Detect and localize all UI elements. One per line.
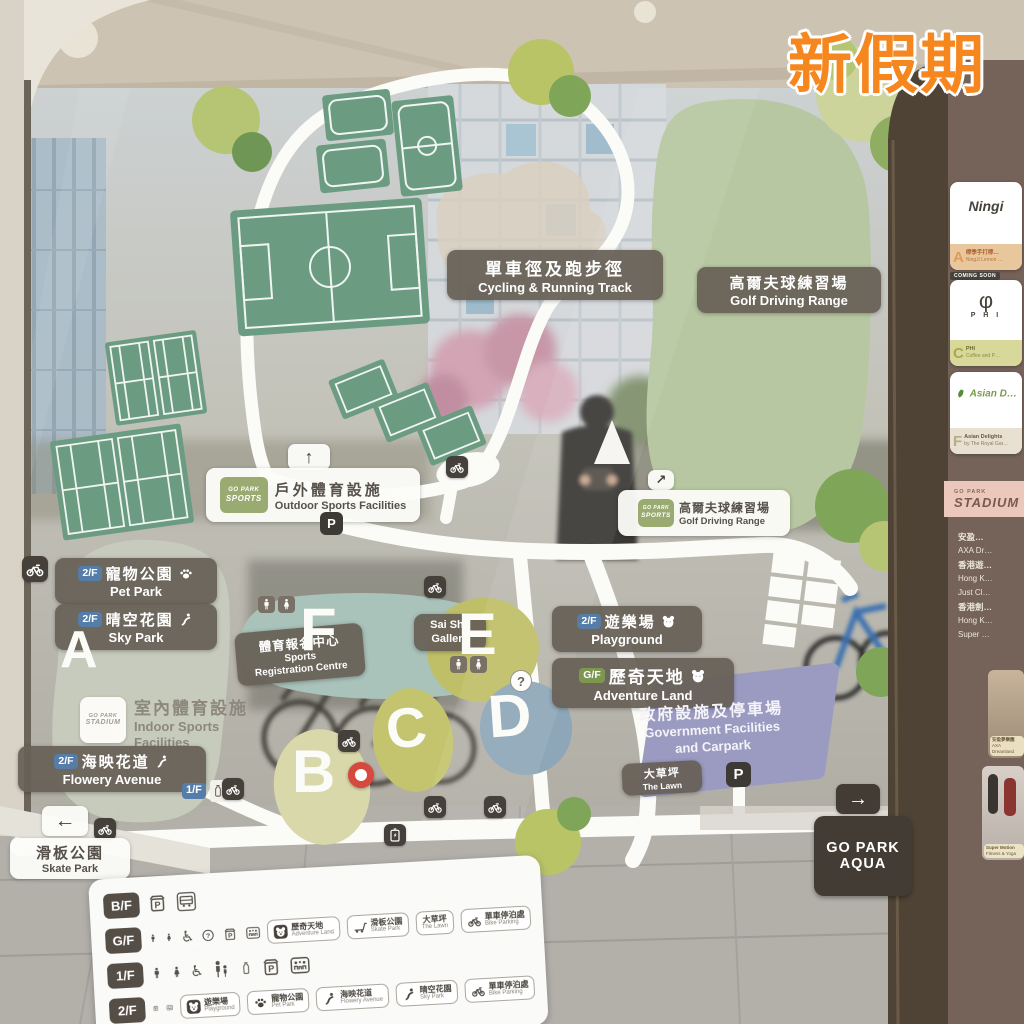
legend-tag-playground: 遊樂場Playground	[180, 992, 242, 1019]
legend-tag-skate-park: 滑板公園Skate Park	[346, 912, 409, 939]
go-park-stadium-badge: GO PARK STADIUM	[80, 697, 126, 743]
paw-icon	[178, 566, 194, 582]
bike-icon	[466, 913, 482, 929]
svg-text:P: P	[154, 900, 161, 910]
logo-text: Asian D…	[970, 389, 1017, 400]
photo-caption: 安盈夢樂園 AXA Dreamland	[990, 736, 1024, 756]
label-the-lawn: 大草坪 The Lawn	[621, 760, 703, 796]
runner-icon	[401, 986, 417, 1002]
up-arrow-icon: ↑	[288, 444, 330, 470]
male-toilet-icon	[150, 962, 164, 985]
floor-badge-2f: 2/F	[109, 997, 146, 1024]
family-room-icon	[289, 954, 312, 977]
label-adventure-zh: 歷奇天地	[609, 663, 685, 688]
label-playground-zh: 遊樂場	[605, 611, 656, 632]
directory-card-asian-delights: Asian D… F Asian Delights by The Royal G…	[950, 372, 1022, 454]
label-pet-park-en: Pet Park	[65, 584, 207, 599]
bike-parking-icon	[222, 778, 244, 800]
card-zh: 檸季手打檸…	[966, 250, 1003, 257]
bear-icon	[689, 667, 707, 685]
bike-parking-icon	[446, 456, 468, 478]
male-toilet-icon	[258, 596, 275, 613]
bike-icon	[470, 982, 486, 998]
label-go-park-aqua: GO PARK AQUA	[814, 816, 912, 896]
tenant-line: Hong K…	[958, 614, 1024, 628]
svg-text:P: P	[155, 1007, 157, 1011]
label-golf-sign-en: Golf Driving Range	[679, 516, 770, 527]
tag-en: The Lawn	[422, 923, 449, 931]
ne-arrow-icon: ↗	[648, 470, 674, 490]
floor-badge-gf: G/F	[579, 668, 605, 683]
tenant-line: Just Cl…	[958, 586, 1024, 600]
card-band: C PHI Coffee and P…	[950, 340, 1022, 366]
floor-badge-1f: 1/F	[107, 962, 144, 989]
sports-badge-line1: GO PARK	[228, 487, 259, 494]
label-golf-zone: 高爾夫球練習場 Golf Driving Range	[697, 267, 881, 313]
svg-text:P: P	[268, 964, 275, 974]
nursing-room-icon	[210, 958, 233, 981]
tenant-list: 安盈… AXA Dr… 香港遊… Hong K… Just Cl… 香港劍… H…	[958, 530, 1024, 641]
zone-letter-a: A	[60, 624, 98, 676]
label-golf-zone-en: Golf Driving Range	[707, 293, 871, 308]
covered-parking-icon: P	[152, 997, 160, 1019]
bear-icon	[273, 923, 289, 939]
wheelchair-icon: ♿	[190, 963, 204, 979]
legend-tag-sky-park: 晴空花園Sky Park	[395, 980, 458, 1007]
floor-1f-amenities: 1/F	[182, 780, 226, 802]
bike-parking-icon	[424, 576, 446, 598]
label-outdoor-en: Outdoor Sports Facilities	[275, 500, 406, 512]
asian-delights-logo: Asian D…	[950, 372, 1022, 400]
toilet-icons	[258, 596, 295, 613]
current-location-pin	[348, 762, 374, 788]
person-silhouette	[988, 774, 998, 814]
female-toilet-icon	[278, 596, 295, 613]
ningji-logo: Ningi	[950, 182, 1022, 214]
paw-icon	[253, 995, 269, 1011]
label-golf-sign: GO PARK SPORTS 高爾夫球練習場 Golf Driving Rang…	[618, 490, 790, 536]
svg-text:P: P	[228, 933, 233, 940]
caption-en2: Fitness & Yoga	[986, 851, 1022, 857]
female-toilet-icon	[170, 961, 184, 984]
shuttle-bus-icon	[175, 890, 198, 913]
magazine-watermark: 新假期	[788, 14, 986, 106]
stadium-badge-line1: GO PARK	[89, 713, 118, 720]
zone-letter-c: C	[383, 698, 429, 758]
female-toilet-icon	[164, 926, 175, 948]
tag-en: Flowery Avenue	[340, 997, 383, 1006]
directory-card-ningji: Ningi A 檸季手打檸… NingJi Lemon …	[950, 182, 1022, 270]
label-indoor-en1: Indoor Sports	[134, 719, 248, 735]
bike-parking-icon	[22, 556, 48, 582]
label-sky-park-zh: 晴空花園	[106, 609, 174, 630]
covered-parking-icon: P	[260, 955, 283, 978]
tenant-line: 香港劍…	[958, 600, 1024, 614]
label-playground-en: Playground	[562, 632, 692, 647]
football-pitch	[230, 197, 430, 336]
label-skate-park: 滑板公園 Skate Park	[10, 838, 130, 879]
basketball-court	[391, 95, 463, 197]
wheelchair-icon: ♿	[181, 929, 195, 945]
coming-soon-tag: COMING SOON	[950, 272, 1000, 280]
label-outdoor-zh: 戶外體育設施	[275, 479, 406, 500]
floor-badge-2f: 2/F	[78, 566, 101, 581]
label-playground: 2/F 遊樂場 Playground	[552, 606, 702, 652]
card-en: NingJi Lemon …	[966, 257, 1003, 263]
phi-logo: φ	[950, 290, 1022, 312]
scooter-icon	[352, 919, 368, 935]
zone-letter-d: D	[486, 685, 533, 748]
card-en: by The Royal Gar…	[964, 441, 1008, 447]
tenant-line: 安盈…	[958, 530, 1024, 544]
label-flowery-zh: 海映花道	[82, 751, 150, 772]
info-icon: ?	[201, 924, 216, 947]
tenant-line: Hong K…	[958, 572, 1024, 586]
tag-en: Bike Parking	[485, 919, 525, 928]
label-cycling-en: Cycling & Running Track	[457, 280, 653, 295]
tennis-courts-1	[105, 330, 208, 426]
card-band: F Asian Delights by The Royal Gar…	[950, 428, 1022, 454]
go-park-sports-badge: GO PARK SPORTS	[220, 477, 268, 513]
unit-letter: C	[953, 346, 964, 361]
covered-parking-icon: P	[221, 923, 238, 946]
tenant-line: Super …	[958, 628, 1024, 642]
futsal-court-1	[322, 89, 394, 142]
card-en: Coffee and P…	[966, 353, 1000, 359]
stadium-badge-line2: STADIUM	[86, 719, 121, 727]
toilet-icons	[450, 656, 487, 673]
info-icon: ?	[510, 670, 532, 692]
caption-en: AXA Dreamland	[992, 743, 1022, 755]
label-flowery-en: Flowery Avenue	[28, 772, 196, 787]
phi-logo-sub: P H I	[950, 312, 1022, 319]
covered-parking-icon: P	[146, 892, 169, 915]
label-aqua-line2: AQUA	[840, 856, 887, 872]
legend-tag-pet-park: 寵物公園Pet Park	[247, 988, 310, 1015]
tenant-line: 香港遊…	[958, 558, 1024, 572]
ev-charger-icon	[384, 824, 406, 846]
male-toilet-icon	[148, 927, 159, 949]
card-zh: PHI	[966, 346, 1000, 353]
runner-icon	[178, 612, 194, 628]
photo-super-motion: Super Motion Fitness & Yoga	[982, 766, 1024, 860]
svg-text:?: ?	[206, 933, 211, 940]
family-room-icon	[166, 996, 174, 1018]
legend-tag-adventure-land: 歷奇天地Adventure Land	[267, 916, 341, 944]
stadium-band: GO PARK STADIUM	[944, 481, 1024, 517]
label-indoor-sports: 室內體育設施 Indoor Sports Facilities	[134, 694, 248, 752]
photo-of-park-map-window: 單車徑及跑步徑 Cycling & Running Track 高爾夫球練習場 …	[0, 0, 1024, 1024]
label-cycling-running-track: 單車徑及跑步徑 Cycling & Running Track	[447, 250, 663, 300]
photo-caption: Super Motion Fitness & Yoga	[984, 844, 1024, 858]
left-arrow-icon: ←	[42, 806, 88, 836]
legend-tag-the-lawn: 大草坪The Lawn	[415, 910, 455, 936]
floor-badge-2f: 2/F	[54, 754, 77, 769]
right-arrow-icon: →	[836, 784, 880, 814]
person-silhouette	[1004, 778, 1016, 816]
legend-tag-flowery-avenue: 海映花道Flowery Avenue	[316, 983, 390, 1011]
tenant-line: AXA Dr…	[958, 544, 1024, 558]
bear-icon	[660, 613, 677, 630]
tag-en: Skate Park	[371, 926, 403, 935]
tennis-courts-2	[50, 423, 195, 540]
label-indoor-zh: 室內體育設施	[134, 694, 248, 719]
tag-en: Adventure Land	[292, 929, 335, 938]
bear-icon	[186, 998, 202, 1014]
zone-letter-f: F	[300, 600, 337, 660]
label-pet-park: 2/F 寵物公園 Pet Park	[55, 558, 217, 604]
label-pet-park-zh: 寵物公園	[106, 563, 174, 584]
floor-badge-1f: 1/F	[182, 783, 206, 798]
label-skate-zh: 滑板公園	[18, 842, 122, 863]
label-golf-zone-zh: 高爾夫球練習場	[707, 272, 871, 293]
floor-badge-bf: B/F	[103, 892, 140, 919]
unit-letter: A	[953, 250, 964, 265]
tag-en: Pet Park	[272, 1001, 304, 1010]
label-outdoor-sports: GO PARK SPORTS 戶外體育設施 Outdoor Sports Fac…	[206, 468, 420, 522]
card-zh: Asian Delights	[964, 434, 1008, 441]
go-park-sports-badge-small: GO PARK SPORTS	[638, 499, 674, 527]
male-toilet-icon	[450, 656, 467, 673]
bike-parking-icon	[424, 796, 446, 818]
female-toilet-icon	[470, 656, 487, 673]
label-flowery-avenue: 2/F 海映花道 Flowery Avenue	[18, 746, 206, 792]
sports-badge-line2: SPORTS	[226, 494, 262, 503]
bike-parking-icon	[484, 796, 506, 818]
runner-icon	[322, 991, 338, 1007]
label-golf-sign-zh: 高爾夫球練習場	[679, 499, 770, 516]
card-band: A 檸季手打檸… NingJi Lemon …	[950, 244, 1022, 270]
parking-icon: P	[726, 762, 751, 787]
legend-tag-bike-parking: 單車停泊處Bike Parking	[460, 905, 531, 933]
sports-badge-sm-line2: SPORTS	[641, 512, 671, 519]
photo-axa-dreamland: 安盈夢樂園 AXA Dreamland	[988, 670, 1024, 758]
legend-card: B/F P G/F ♿ ? P 歷奇天地Adventure Land 滑板公園S…	[88, 855, 549, 1024]
label-skate-en: Skate Park	[18, 863, 122, 875]
label-aqua-line1: GO PARK	[826, 840, 900, 856]
unit-letter: F	[953, 434, 962, 449]
floor-badge-gf: G/F	[105, 927, 142, 954]
legend-tag-bike-parking: 單車停泊處Bike Parking	[464, 975, 535, 1003]
futsal-court-2	[316, 138, 391, 193]
tag-en: Playground	[204, 1005, 235, 1014]
label-cycling-zh: 單車徑及跑步徑	[457, 255, 653, 280]
stadium-band-big: STADIUM	[954, 495, 1024, 510]
water-refill-icon	[239, 957, 254, 980]
zone-letter-b: B	[292, 742, 335, 802]
label-government-facilities: 政府設施及停車場 Government Facilities and Carpa…	[605, 692, 820, 761]
bike-parking-icon	[338, 730, 360, 752]
directory-card-phi: φ P H I C PHI Coffee and P…	[950, 280, 1022, 366]
bike-parking-icon	[94, 818, 116, 840]
runner-icon	[154, 754, 170, 770]
family-room-icon	[244, 921, 261, 944]
leaf-icon	[955, 388, 967, 400]
tag-en: Sky Park	[420, 993, 452, 1002]
tag-en: Bike Parking	[489, 989, 529, 998]
floor-badge-2f: 2/F	[577, 614, 600, 629]
parking-icon: P	[320, 512, 343, 535]
